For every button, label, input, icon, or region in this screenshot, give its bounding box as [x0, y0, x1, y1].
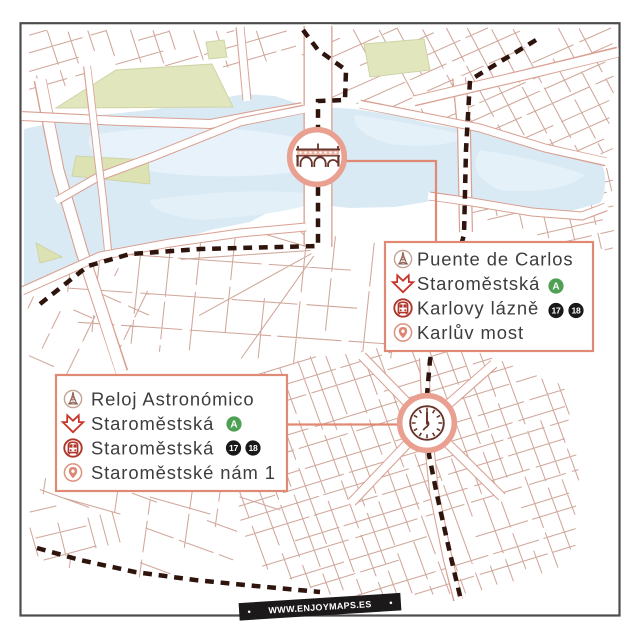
svg-text:Karlovy lázně: Karlovy lázně	[417, 298, 539, 319]
svg-text:Karlův most: Karlův most	[417, 322, 524, 343]
svg-text:18: 18	[572, 306, 581, 316]
svg-text:Puente de Carlos: Puente de Carlos	[417, 249, 574, 270]
svg-text:A: A	[230, 420, 237, 431]
svg-text:17: 17	[229, 443, 238, 453]
svg-text:Staroměstská: Staroměstská	[417, 273, 540, 294]
svg-text:17: 17	[552, 306, 561, 316]
svg-text:18: 18	[249, 443, 258, 453]
svg-text:Reloj Astronómico: Reloj Astronómico	[91, 389, 255, 410]
svg-text:A: A	[552, 282, 559, 293]
svg-text:Staroměstské nám 1: Staroměstské nám 1	[91, 462, 276, 483]
svg-text:Staroměstská: Staroměstská	[91, 413, 214, 434]
svg-text:Staroměstská: Staroměstská	[91, 438, 214, 459]
